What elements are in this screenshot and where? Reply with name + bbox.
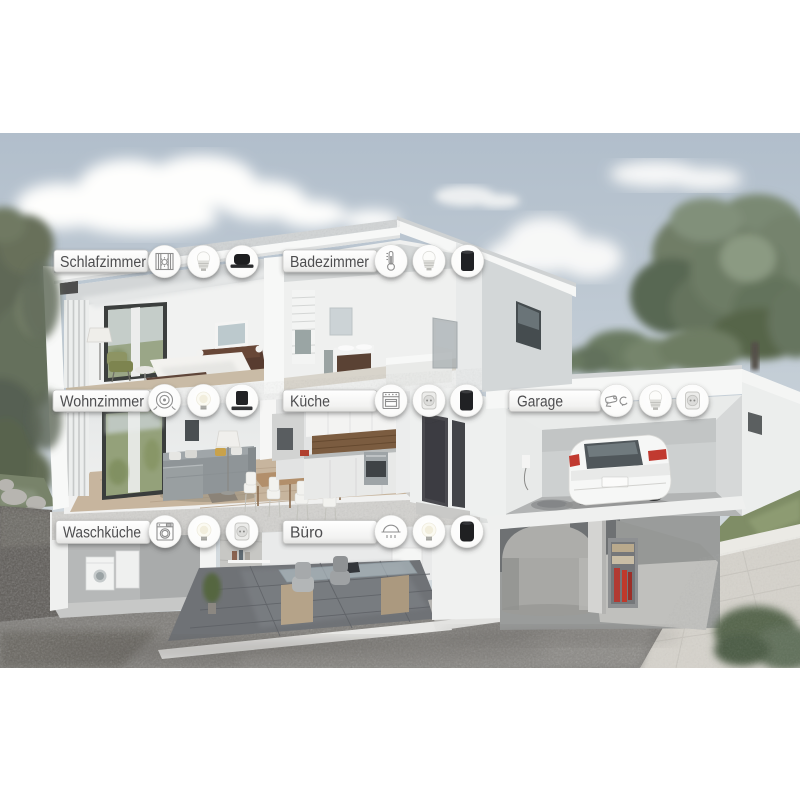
svg-text:Büro: Büro <box>290 525 323 542</box>
svg-text:Wohnzimmer: Wohnzimmer <box>60 394 144 411</box>
svg-text:Küche: Küche <box>290 394 330 411</box>
svg-text:Garage: Garage <box>517 394 563 411</box>
svg-text:Schlafzimmer: Schlafzimmer <box>60 254 146 271</box>
svg-text:Badezimmer: Badezimmer <box>290 254 369 271</box>
svg-text:Waschküche: Waschküche <box>63 525 141 542</box>
